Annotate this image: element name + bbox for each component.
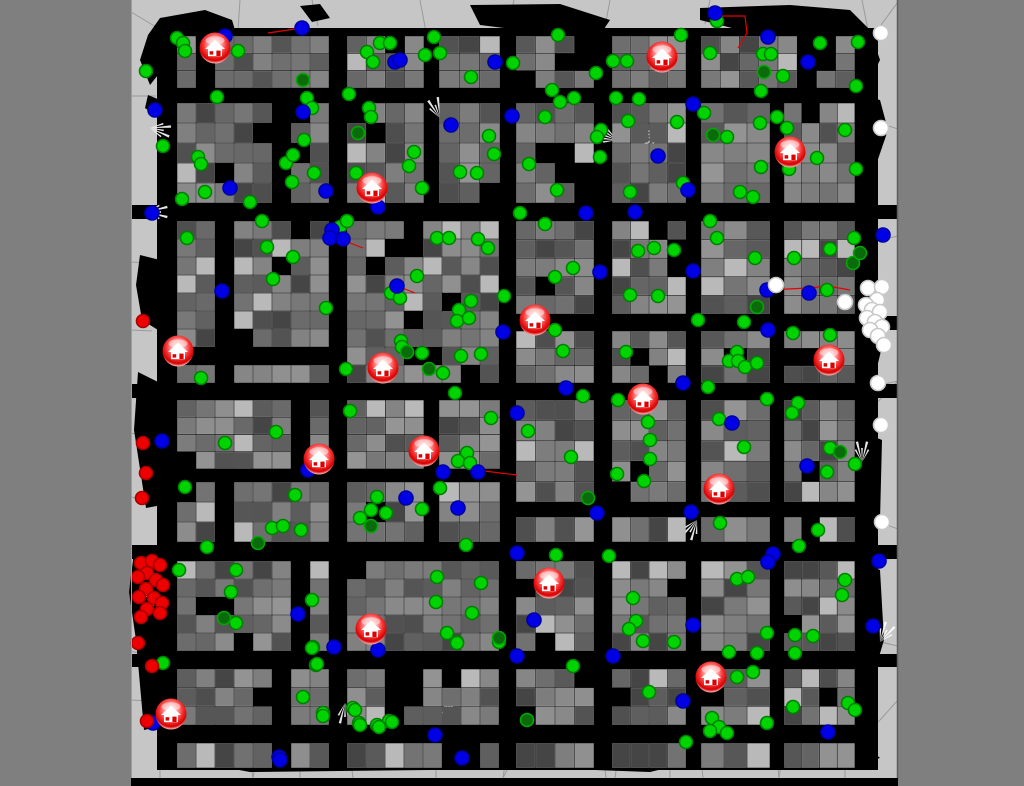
police-force-dot[interactable] bbox=[559, 381, 573, 395]
civilian-dot[interactable] bbox=[416, 503, 429, 516]
civilian-injured-dot[interactable] bbox=[834, 446, 847, 459]
civilian-dot[interactable] bbox=[787, 701, 800, 714]
civilian-dot[interactable] bbox=[788, 252, 801, 265]
civilian-dot[interactable] bbox=[344, 405, 357, 418]
civilian-dot[interactable] bbox=[230, 617, 243, 630]
refuge-icon[interactable] bbox=[704, 474, 735, 505]
civilian-dot[interactable] bbox=[546, 84, 559, 97]
civilian-dot[interactable] bbox=[557, 345, 570, 358]
civilian-dot[interactable] bbox=[306, 642, 319, 655]
civilian-dot[interactable] bbox=[287, 149, 300, 162]
civilian-dot[interactable] bbox=[549, 271, 562, 284]
refuge-icon[interactable] bbox=[163, 336, 194, 367]
civilian-injured-dot[interactable] bbox=[252, 537, 265, 550]
civilian-dot[interactable] bbox=[514, 207, 527, 220]
civilian-dot[interactable] bbox=[416, 182, 429, 195]
civilian-dot[interactable] bbox=[320, 302, 333, 315]
refuge-icon[interactable] bbox=[304, 444, 335, 475]
civilian-injured-dot[interactable] bbox=[401, 346, 414, 359]
fire-brigade-dot[interactable] bbox=[133, 591, 146, 604]
police-force-dot[interactable] bbox=[676, 694, 690, 708]
civilian-dot[interactable] bbox=[256, 215, 269, 228]
civilian-dot[interactable] bbox=[738, 316, 751, 329]
refuge-icon[interactable] bbox=[647, 42, 678, 73]
civilian-dot[interactable] bbox=[786, 407, 799, 420]
civilian-dot[interactable] bbox=[644, 434, 657, 447]
police-force-dot[interactable] bbox=[579, 206, 593, 220]
fire-brigade-dot[interactable] bbox=[136, 492, 149, 505]
civilian-dot[interactable] bbox=[590, 67, 603, 80]
police-force-dot[interactable] bbox=[145, 206, 159, 220]
civilian-dot[interactable] bbox=[761, 393, 774, 406]
civilian-dot[interactable] bbox=[201, 541, 214, 554]
civilian-dot[interactable] bbox=[836, 589, 849, 602]
civilian-dot[interactable] bbox=[643, 686, 656, 699]
civilian-dot[interactable] bbox=[341, 215, 354, 228]
civilian-dot[interactable] bbox=[755, 161, 768, 174]
civilian-dot[interactable] bbox=[419, 49, 432, 62]
civilian-dot[interactable] bbox=[755, 85, 768, 98]
police-force-dot[interactable] bbox=[323, 231, 337, 245]
civilian-dot[interactable] bbox=[610, 92, 623, 105]
civilian-dot[interactable] bbox=[839, 574, 852, 587]
civilian-dot[interactable] bbox=[230, 564, 243, 577]
civilian-dot[interactable] bbox=[539, 218, 552, 231]
civilian-dot[interactable] bbox=[465, 71, 478, 84]
police-force-dot[interactable] bbox=[319, 184, 333, 198]
civilian-dot[interactable] bbox=[603, 550, 616, 563]
refuge-icon[interactable] bbox=[520, 305, 551, 336]
civilian-dot[interactable] bbox=[431, 232, 444, 245]
police-force-dot[interactable] bbox=[761, 555, 775, 569]
police-force-dot[interactable] bbox=[488, 55, 502, 69]
civilian-dot[interactable] bbox=[298, 134, 311, 147]
civilian-dot[interactable] bbox=[807, 630, 820, 643]
civilian-dot[interactable] bbox=[668, 636, 681, 649]
police-force-dot[interactable] bbox=[444, 118, 458, 132]
civilian-dot[interactable] bbox=[552, 29, 565, 42]
police-force-dot[interactable] bbox=[505, 109, 519, 123]
civilian-dot[interactable] bbox=[723, 646, 736, 659]
civilian-dot[interactable] bbox=[317, 710, 330, 723]
civilian-dot[interactable] bbox=[211, 91, 224, 104]
police-force-dot[interactable] bbox=[876, 228, 890, 242]
fire-brigade-dot[interactable] bbox=[146, 660, 159, 673]
ambulance-team-dot[interactable] bbox=[874, 418, 889, 433]
refuge-icon[interactable] bbox=[775, 137, 806, 168]
civilian-dot[interactable] bbox=[632, 245, 645, 258]
civilian-dot[interactable] bbox=[287, 251, 300, 264]
civilian-dot[interactable] bbox=[849, 458, 862, 471]
police-force-dot[interactable] bbox=[148, 103, 162, 117]
police-force-dot[interactable] bbox=[291, 607, 305, 621]
fire-brigade-dot[interactable] bbox=[157, 579, 170, 592]
police-force-dot[interactable] bbox=[510, 406, 524, 420]
civilian-dot[interactable] bbox=[449, 387, 462, 400]
civilian-injured-dot[interactable] bbox=[297, 74, 310, 87]
police-force-dot[interactable] bbox=[471, 465, 485, 479]
civilian-dot[interactable] bbox=[824, 329, 837, 342]
civilian-dot[interactable] bbox=[434, 482, 447, 495]
civilian-dot[interactable] bbox=[638, 475, 651, 488]
police-force-dot[interactable] bbox=[872, 554, 886, 568]
refuge-icon[interactable] bbox=[356, 614, 387, 645]
civilian-dot[interactable] bbox=[308, 167, 321, 180]
ambulance-team-dot[interactable] bbox=[874, 26, 889, 41]
civilian-dot[interactable] bbox=[698, 107, 711, 120]
civilian-dot[interactable] bbox=[591, 131, 604, 144]
civilian-dot[interactable] bbox=[452, 455, 465, 468]
civilian-dot[interactable] bbox=[295, 524, 308, 537]
civilian-dot[interactable] bbox=[416, 347, 429, 360]
civilian-dot[interactable] bbox=[455, 350, 468, 363]
civilian-dot[interactable] bbox=[754, 117, 767, 130]
refuge-icon[interactable] bbox=[534, 568, 565, 599]
civilian-dot[interactable] bbox=[821, 284, 834, 297]
civilian-dot[interactable] bbox=[539, 111, 552, 124]
civilian-dot[interactable] bbox=[483, 130, 496, 143]
police-force-dot[interactable] bbox=[590, 506, 604, 520]
civilian-dot[interactable] bbox=[523, 158, 536, 171]
police-force-dot[interactable] bbox=[684, 505, 698, 519]
civilian-dot[interactable] bbox=[460, 539, 473, 552]
civilian-dot[interactable] bbox=[704, 725, 717, 738]
civilian-dot[interactable] bbox=[550, 549, 563, 562]
civilian-dot[interactable] bbox=[485, 412, 498, 425]
civilian-dot[interactable] bbox=[475, 348, 488, 361]
refuge-icon[interactable] bbox=[156, 699, 187, 730]
civilian-dot[interactable] bbox=[471, 167, 484, 180]
civilian-dot[interactable] bbox=[554, 96, 567, 109]
police-force-dot[interactable] bbox=[681, 183, 695, 197]
civilian-dot[interactable] bbox=[702, 381, 715, 394]
civilian-dot[interactable] bbox=[668, 244, 681, 257]
civilian-dot[interactable] bbox=[451, 315, 464, 328]
civilian-dot[interactable] bbox=[789, 647, 802, 660]
civilian-dot[interactable] bbox=[624, 186, 637, 199]
civilian-dot[interactable] bbox=[195, 372, 208, 385]
civilian-dot[interactable] bbox=[365, 504, 378, 517]
civilian-dot[interactable] bbox=[522, 425, 535, 438]
police-force-dot[interactable] bbox=[451, 501, 465, 515]
civilian-dot[interactable] bbox=[624, 289, 637, 302]
civilian-dot[interactable] bbox=[721, 727, 734, 740]
police-force-dot[interactable] bbox=[215, 284, 229, 298]
civilian-dot[interactable] bbox=[431, 571, 444, 584]
civilian-dot[interactable] bbox=[434, 47, 447, 60]
ambulance-team-dot[interactable] bbox=[875, 515, 890, 530]
civilian-dot[interactable] bbox=[507, 57, 520, 70]
civilian-injured-dot[interactable] bbox=[365, 520, 378, 533]
civilian-dot[interactable] bbox=[594, 151, 607, 164]
civilian-dot[interactable] bbox=[349, 704, 362, 717]
refuge-icon[interactable] bbox=[357, 173, 388, 204]
fire-brigade-dot[interactable] bbox=[132, 637, 145, 650]
civilian-dot[interactable] bbox=[140, 65, 153, 78]
police-force-dot[interactable] bbox=[223, 181, 237, 195]
civilian-dot[interactable] bbox=[437, 367, 450, 380]
civilian-dot[interactable] bbox=[747, 666, 760, 679]
police-force-dot[interactable] bbox=[866, 619, 880, 633]
police-force-dot[interactable] bbox=[510, 649, 524, 663]
civilian-dot[interactable] bbox=[498, 290, 511, 303]
civilian-injured-dot[interactable] bbox=[423, 363, 436, 376]
police-force-dot[interactable] bbox=[821, 725, 835, 739]
civilian-dot[interactable] bbox=[852, 36, 865, 49]
police-force-dot[interactable] bbox=[686, 97, 700, 111]
fire-brigade-dot[interactable] bbox=[141, 715, 154, 728]
fire-brigade-dot[interactable] bbox=[140, 467, 153, 480]
civilian-dot[interactable] bbox=[777, 70, 790, 83]
civilian-dot[interactable] bbox=[747, 191, 760, 204]
civilian-dot[interactable] bbox=[195, 158, 208, 171]
civilian-dot[interactable] bbox=[704, 47, 717, 60]
civilian-dot[interactable] bbox=[261, 241, 274, 254]
civilian-dot[interactable] bbox=[451, 637, 464, 650]
civilian-dot[interactable] bbox=[751, 357, 764, 370]
civilian-dot[interactable] bbox=[466, 607, 479, 620]
civilian-dot[interactable] bbox=[742, 571, 755, 584]
civilian-dot[interactable] bbox=[482, 242, 495, 255]
police-force-dot[interactable] bbox=[327, 640, 341, 654]
civilian-dot[interactable] bbox=[386, 716, 399, 729]
police-force-dot[interactable] bbox=[510, 546, 524, 560]
civilian-dot[interactable] bbox=[621, 55, 634, 68]
civilian-dot[interactable] bbox=[612, 394, 625, 407]
civilian-injured-dot[interactable] bbox=[582, 492, 595, 505]
civilian-dot[interactable] bbox=[181, 232, 194, 245]
civilian-dot[interactable] bbox=[565, 451, 578, 464]
civilian-dot[interactable] bbox=[350, 167, 363, 180]
police-force-dot[interactable] bbox=[496, 325, 510, 339]
civilian-dot[interactable] bbox=[812, 524, 825, 537]
civilian-dot[interactable] bbox=[463, 312, 476, 325]
civilian-dot[interactable] bbox=[849, 704, 862, 717]
civilian-dot[interactable] bbox=[620, 346, 633, 359]
civilian-injured-dot[interactable] bbox=[493, 632, 506, 645]
fire-brigade-dot[interactable] bbox=[135, 611, 148, 624]
civilian-dot[interactable] bbox=[454, 166, 467, 179]
civilian-dot[interactable] bbox=[179, 481, 192, 494]
fire-brigade-dot[interactable] bbox=[132, 571, 145, 584]
civilian-dot[interactable] bbox=[714, 517, 727, 530]
civilian-dot[interactable] bbox=[622, 115, 635, 128]
civilian-dot[interactable] bbox=[811, 152, 824, 165]
civilian-dot[interactable] bbox=[671, 116, 684, 129]
civilian-dot[interactable] bbox=[475, 577, 488, 590]
civilian-dot[interactable] bbox=[277, 520, 290, 533]
refuge-icon[interactable] bbox=[696, 662, 727, 693]
civilian-dot[interactable] bbox=[244, 196, 257, 209]
civilian-dot[interactable] bbox=[306, 594, 319, 607]
civilian-dot[interactable] bbox=[793, 540, 806, 553]
civilian-injured-dot[interactable] bbox=[521, 714, 534, 727]
civilian-dot[interactable] bbox=[365, 111, 378, 124]
civilian-dot[interactable] bbox=[157, 140, 170, 153]
police-force-dot[interactable] bbox=[455, 751, 469, 765]
civilian-dot[interactable] bbox=[443, 232, 456, 245]
civilian-dot[interactable] bbox=[549, 324, 562, 337]
civilian-dot[interactable] bbox=[343, 88, 356, 101]
refuge-icon[interactable] bbox=[409, 436, 440, 467]
civilian-dot[interactable] bbox=[567, 660, 580, 673]
police-force-dot[interactable] bbox=[399, 491, 413, 505]
civilian-dot[interactable] bbox=[839, 124, 852, 137]
police-force-dot[interactable] bbox=[800, 459, 814, 473]
police-force-dot[interactable] bbox=[273, 753, 287, 767]
civilian-dot[interactable] bbox=[199, 186, 212, 199]
civilian-dot[interactable] bbox=[577, 390, 590, 403]
civilian-dot[interactable] bbox=[787, 327, 800, 340]
civilian-injured-dot[interactable] bbox=[751, 301, 764, 314]
civilian-dot[interactable] bbox=[367, 56, 380, 69]
civilian-dot[interactable] bbox=[648, 242, 661, 255]
civilian-dot[interactable] bbox=[739, 361, 752, 374]
civilian-dot[interactable] bbox=[219, 437, 232, 450]
police-force-dot[interactable] bbox=[725, 416, 739, 430]
police-force-dot[interactable] bbox=[436, 465, 450, 479]
civilian-dot[interactable] bbox=[311, 658, 324, 671]
civilian-dot[interactable] bbox=[781, 122, 794, 135]
civilian-dot[interactable] bbox=[633, 93, 646, 106]
ambulance-team-dot[interactable] bbox=[769, 278, 784, 293]
civilian-dot[interactable] bbox=[373, 721, 386, 734]
refuge-icon[interactable] bbox=[368, 353, 399, 384]
civilian-dot[interactable] bbox=[286, 176, 299, 189]
police-force-dot[interactable] bbox=[708, 6, 722, 20]
civilian-dot[interactable] bbox=[408, 146, 421, 159]
fire-brigade-dot[interactable] bbox=[154, 607, 167, 620]
police-force-dot[interactable] bbox=[155, 434, 169, 448]
civilian-dot[interactable] bbox=[340, 363, 353, 376]
ambulance-team-dot[interactable] bbox=[874, 121, 889, 136]
civilian-dot[interactable] bbox=[551, 184, 564, 197]
civilian-dot[interactable] bbox=[765, 48, 778, 61]
civilian-dot[interactable] bbox=[232, 45, 245, 58]
ambulance-team-dot[interactable] bbox=[838, 295, 853, 310]
police-force-dot[interactable] bbox=[606, 649, 620, 663]
civilian-dot[interactable] bbox=[771, 111, 784, 124]
refuge-icon[interactable] bbox=[200, 33, 231, 64]
civilian-dot[interactable] bbox=[623, 623, 636, 636]
civilian-dot[interactable] bbox=[430, 596, 443, 609]
ambulance-team-dot[interactable] bbox=[877, 338, 892, 353]
civilian-dot[interactable] bbox=[611, 468, 624, 481]
civilian-dot[interactable] bbox=[371, 491, 384, 504]
civilian-dot[interactable] bbox=[176, 193, 189, 206]
civilian-dot[interactable] bbox=[821, 466, 834, 479]
civilian-dot[interactable] bbox=[637, 635, 650, 648]
civilian-dot[interactable] bbox=[644, 453, 657, 466]
civilian-dot[interactable] bbox=[465, 295, 478, 308]
civilian-dot[interactable] bbox=[749, 252, 762, 265]
civilian-dot[interactable] bbox=[738, 441, 751, 454]
civilian-dot[interactable] bbox=[297, 691, 310, 704]
civilian-dot[interactable] bbox=[734, 186, 747, 199]
civilian-dot[interactable] bbox=[289, 489, 302, 502]
civilian-injured-dot[interactable] bbox=[854, 247, 867, 260]
civilian-dot[interactable] bbox=[652, 290, 665, 303]
civilian-injured-dot[interactable] bbox=[707, 129, 720, 142]
civilian-dot[interactable] bbox=[267, 273, 280, 286]
civilian-dot[interactable] bbox=[680, 736, 693, 749]
civilian-dot[interactable] bbox=[675, 29, 688, 42]
civilian-dot[interactable] bbox=[848, 232, 861, 245]
civilian-injured-dot[interactable] bbox=[758, 66, 771, 79]
refuge-icon[interactable] bbox=[628, 384, 659, 415]
police-force-dot[interactable] bbox=[761, 323, 775, 337]
police-force-dot[interactable] bbox=[651, 149, 665, 163]
civilian-dot[interactable] bbox=[642, 416, 655, 429]
civilian-dot[interactable] bbox=[411, 270, 424, 283]
civilian-dot[interactable] bbox=[731, 671, 744, 684]
civilian-dot[interactable] bbox=[692, 314, 705, 327]
civilian-dot[interactable] bbox=[567, 262, 580, 275]
civilian-dot[interactable] bbox=[761, 627, 774, 640]
police-force-dot[interactable] bbox=[336, 232, 350, 246]
police-force-dot[interactable] bbox=[801, 55, 815, 69]
civilian-dot[interactable] bbox=[814, 37, 827, 50]
police-force-dot[interactable] bbox=[428, 728, 442, 742]
civilian-dot[interactable] bbox=[568, 92, 581, 105]
civilian-dot[interactable] bbox=[789, 629, 802, 642]
civilian-injured-dot[interactable] bbox=[352, 127, 365, 140]
civilian-dot[interactable] bbox=[380, 507, 393, 520]
police-force-dot[interactable] bbox=[628, 205, 642, 219]
civilian-dot[interactable] bbox=[354, 719, 367, 732]
police-force-dot[interactable] bbox=[390, 279, 404, 293]
police-force-dot[interactable] bbox=[686, 618, 700, 632]
civilian-dot[interactable] bbox=[711, 232, 724, 245]
civilian-dot[interactable] bbox=[850, 80, 863, 93]
civilian-dot[interactable] bbox=[713, 413, 726, 426]
civilian-dot[interactable] bbox=[704, 215, 717, 228]
civilian-dot[interactable] bbox=[850, 163, 863, 176]
police-force-dot[interactable] bbox=[527, 613, 541, 627]
civilian-dot[interactable] bbox=[354, 512, 367, 525]
civilian-dot[interactable] bbox=[225, 586, 238, 599]
ambulance-team-dot[interactable] bbox=[871, 376, 886, 391]
civilian-dot[interactable] bbox=[270, 426, 283, 439]
refuge-icon[interactable] bbox=[814, 345, 845, 376]
civilian-dot[interactable] bbox=[428, 31, 441, 44]
civilian-injured-dot[interactable] bbox=[218, 612, 231, 625]
police-force-dot[interactable] bbox=[393, 53, 407, 67]
police-force-dot[interactable] bbox=[802, 286, 816, 300]
police-force-dot[interactable] bbox=[676, 376, 690, 390]
civilian-dot[interactable] bbox=[488, 148, 501, 161]
police-force-dot[interactable] bbox=[686, 264, 700, 278]
civilian-dot[interactable] bbox=[384, 37, 397, 50]
police-force-dot[interactable] bbox=[761, 30, 775, 44]
civilian-dot[interactable] bbox=[761, 717, 774, 730]
police-force-dot[interactable] bbox=[371, 643, 385, 657]
civilian-dot[interactable] bbox=[721, 131, 734, 144]
civilian-dot[interactable] bbox=[824, 243, 837, 256]
civilian-dot[interactable] bbox=[751, 647, 764, 660]
civilian-dot[interactable] bbox=[627, 592, 640, 605]
police-force-dot[interactable] bbox=[295, 21, 309, 35]
civilian-dot[interactable] bbox=[179, 45, 192, 58]
police-force-dot[interactable] bbox=[593, 265, 607, 279]
fire-brigade-dot[interactable] bbox=[137, 437, 150, 450]
civilian-dot[interactable] bbox=[173, 564, 186, 577]
police-force-dot[interactable] bbox=[296, 105, 310, 119]
civilian-dot[interactable] bbox=[607, 55, 620, 68]
fire-brigade-dot[interactable] bbox=[154, 559, 167, 572]
civilian-dot[interactable] bbox=[403, 160, 416, 173]
fire-brigade-dot[interactable] bbox=[137, 315, 150, 328]
